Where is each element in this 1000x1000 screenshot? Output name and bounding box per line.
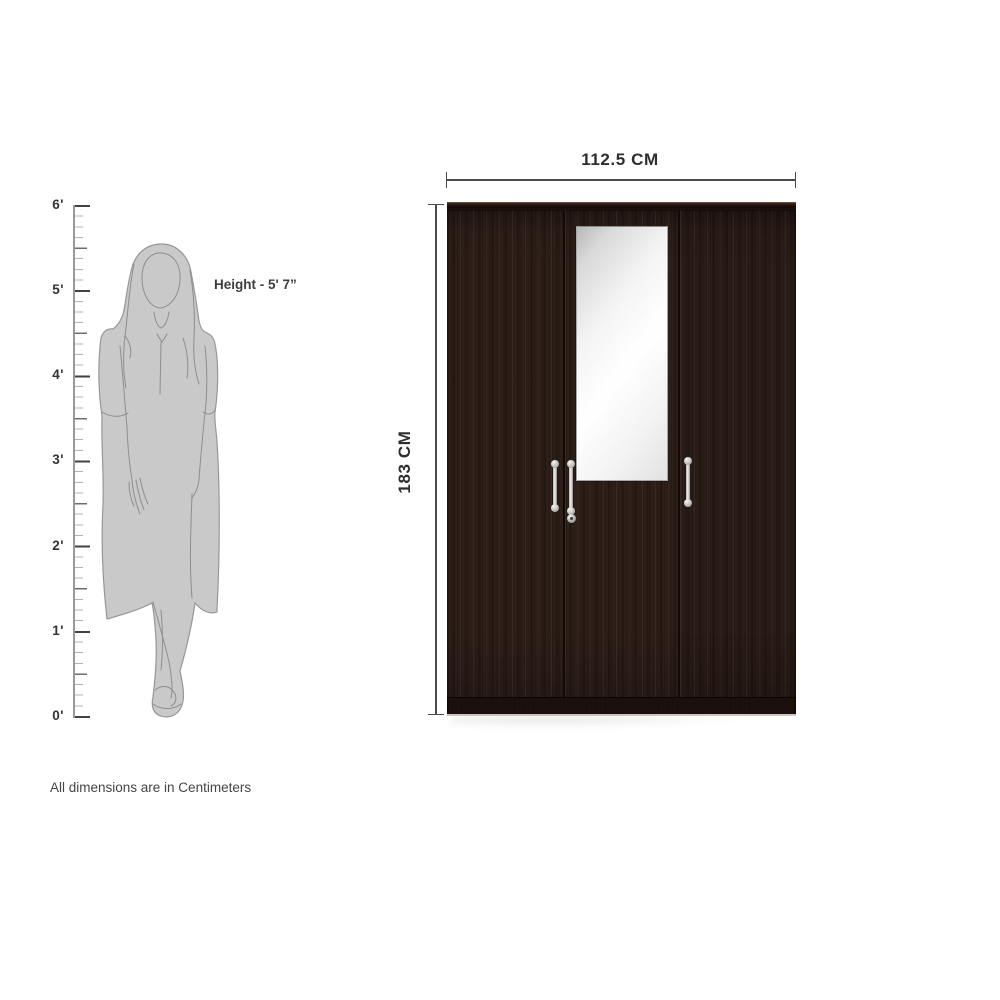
door-seam-right <box>678 210 680 697</box>
door-seam-left <box>563 210 565 697</box>
width-dimension-label: 112.5 CM <box>446 150 794 170</box>
ruler-foot-label-0: 0' <box>34 706 64 726</box>
scale-reference-group: 6' 5' 4' 3' 2' 1' 0' <box>0 0 330 760</box>
ruler-foot-label-4: 4' <box>34 365 64 385</box>
product-dimension-page: { "diagram": { "note": "All dimensions a… <box>0 0 1000 1000</box>
right-door-handle <box>686 460 690 504</box>
height-dimension-label: 183 CM <box>395 412 415 512</box>
ruler-foot-label-1: 1' <box>34 621 64 641</box>
mirror <box>576 226 668 481</box>
wardrobe-top-panel <box>447 202 796 210</box>
ruler-foot-label-5: 5' <box>34 280 64 300</box>
woman-silhouette <box>95 242 230 720</box>
height-ruler <box>73 205 92 718</box>
units-note: All dimensions are in Centimeters <box>50 780 251 795</box>
figure-outline <box>99 244 219 717</box>
wardrobe-base-plinth <box>447 697 796 716</box>
ruler-foot-label-3: 3' <box>34 450 64 470</box>
ruler-foot-label-2: 2' <box>34 536 64 556</box>
center-door-handle <box>569 463 573 512</box>
width-dimension-line <box>446 172 796 188</box>
height-dimension-line <box>428 204 444 715</box>
wardrobe-doors <box>447 210 796 697</box>
ruler-foot-label-6: 6' <box>34 195 64 215</box>
keyhole-lock <box>567 514 576 523</box>
left-door-handle <box>553 463 557 509</box>
wardrobe-door-right <box>678 210 796 697</box>
wardrobe <box>447 202 796 716</box>
figure-height-label: Height - 5' 7” <box>214 277 297 292</box>
